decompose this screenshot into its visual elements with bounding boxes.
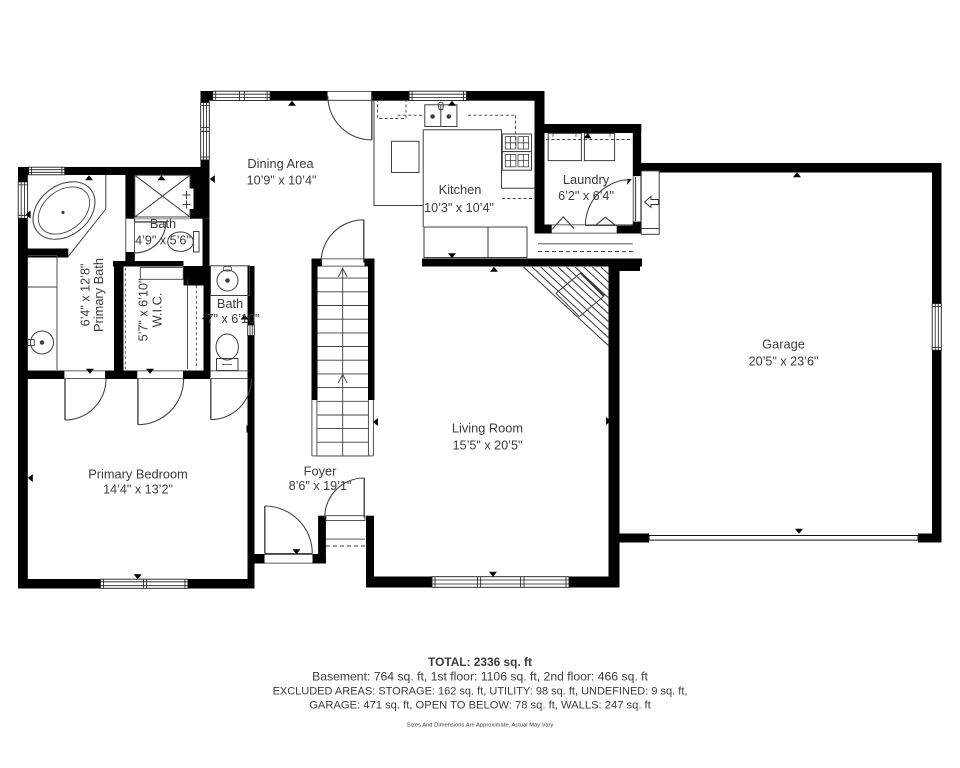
svg-text:8’6" x 19’1": 8’6" x 19’1"	[289, 479, 352, 493]
svg-text:Foyer: Foyer	[304, 464, 337, 479]
svg-text:TOTAL: 2336 sq. ft: TOTAL: 2336 sq. ft	[428, 655, 532, 669]
svg-text:Bath: Bath	[150, 216, 176, 231]
svg-text:Basement: 764 sq. ft, 1st floo: Basement: 764 sq. ft, 1st floor: 1106 sq…	[312, 670, 648, 684]
svg-text:5’7" x 6’10": 5’7" x 6’10"	[137, 279, 151, 342]
svg-text:Laundry: Laundry	[563, 172, 610, 187]
svg-text:W.I.C.: W.I.C.	[150, 293, 165, 328]
svg-text:4’9" x 5’6": 4’9" x 5’6"	[135, 234, 191, 248]
svg-text:Bath: Bath	[217, 296, 243, 311]
svg-text:10’9" x 10’4": 10’9" x 10’4"	[247, 174, 317, 188]
svg-text:14’4" x 13’2": 14’4" x 13’2"	[103, 483, 173, 497]
svg-text:EXCLUDED AREAS: STORAGE: 162 s: EXCLUDED AREAS: STORAGE: 162 sq. ft, UTI…	[273, 686, 688, 698]
svg-text:Kitchen: Kitchen	[439, 182, 482, 197]
svg-text:Primary Bath: Primary Bath	[91, 258, 106, 332]
svg-text:GARAGE: 471 sq. ft, OPEN TO BE: GARAGE: 471 sq. ft, OPEN TO BELOW: 78 sq…	[309, 700, 651, 712]
svg-text:10’3" x 10’4": 10’3" x 10’4"	[424, 201, 494, 215]
svg-text:7" x 6’10": 7" x 6’10"	[206, 312, 259, 326]
svg-text:15’5" x 20’5": 15’5" x 20’5"	[453, 439, 523, 453]
svg-text:6’4" x 12’8": 6’4" x 12’8"	[79, 264, 93, 327]
svg-text:Living Room: Living Room	[452, 421, 523, 436]
svg-text:6’2" x 6’4": 6’2" x 6’4"	[558, 189, 614, 203]
svg-text:Garage: Garage	[762, 337, 805, 352]
svg-text:Sizes And Dimensions Are Appro: Sizes And Dimensions Are Approximate, Ac…	[407, 723, 554, 729]
svg-text:Primary Bedroom: Primary Bedroom	[88, 467, 188, 482]
svg-text:Dining Area: Dining Area	[247, 156, 314, 171]
svg-text:20’5" x 23’6": 20’5" x 23’6"	[749, 355, 819, 369]
